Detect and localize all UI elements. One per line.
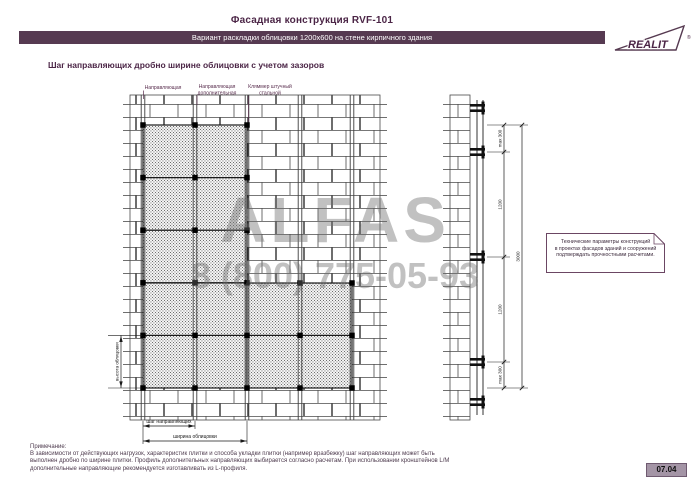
note-line: в проектах фасадов зданий и сооружений	[546, 246, 665, 253]
dim-slash-ticks	[502, 123, 524, 390]
dim-span2: 1200	[498, 304, 503, 315]
label-rail-additional-1: Направляющая	[199, 84, 236, 90]
dim-span1: 1200	[498, 199, 503, 210]
document-page: Фасадная конструкция RVF-101 Вариант рас…	[0, 0, 700, 498]
note-box: Технические параметры конструкций в прое…	[546, 233, 665, 273]
label-clamp-1: Кляммер штучный	[248, 83, 292, 90]
page-title: Фасадная конструкция RVF-101	[19, 15, 605, 26]
cladding-area-left	[143, 125, 247, 388]
brick-wall-section	[450, 95, 470, 420]
note-line: Технические параметры конструкций	[546, 239, 665, 246]
header-bar: Вариант раскладки облицовки 1200x600 на …	[19, 31, 605, 44]
page-number-badge: 07.04	[646, 463, 687, 477]
dim-total: 3000	[516, 251, 521, 262]
facade-drawing: Направляющая Направляющая дополнительная…	[80, 78, 540, 445]
section-title: Шаг направляющих дробно ширине облицовки…	[48, 60, 324, 70]
footnote: Примечание: В зависимости от действующих…	[30, 444, 449, 473]
label-rail-additional-2: дополнительная	[198, 91, 237, 97]
dim-top-offset: max 300	[498, 129, 503, 147]
realit-logo: REALIT ®	[612, 22, 698, 54]
dim-bottom-offset: max 300	[498, 366, 503, 384]
header-subtitle: Вариант раскладки облицовки 1200x600 на …	[19, 31, 605, 44]
footnote-line: выполнен дробно по ширине плитки. Профил…	[30, 458, 449, 465]
dim-label-height: высота облицовки	[115, 342, 120, 381]
dim-label-width: ширина облицовки	[173, 434, 217, 440]
logo-registered-mark: ®	[687, 34, 691, 41]
note-line: подтверждать прочностными расчетами.	[546, 252, 665, 259]
dim-label-step: шаг направляющих	[146, 419, 192, 425]
wall-right-edge-ticks	[380, 95, 387, 420]
side-wall-edge-ticks	[443, 95, 450, 420]
wall-left-edge-ticks	[123, 95, 130, 420]
label-clamp-2: стальной	[259, 90, 281, 97]
footnote-line: дополнительные направляющие рекомендуетс…	[30, 466, 449, 473]
label-rail: Направляющая	[145, 85, 182, 91]
logo-text: REALIT	[628, 39, 669, 51]
